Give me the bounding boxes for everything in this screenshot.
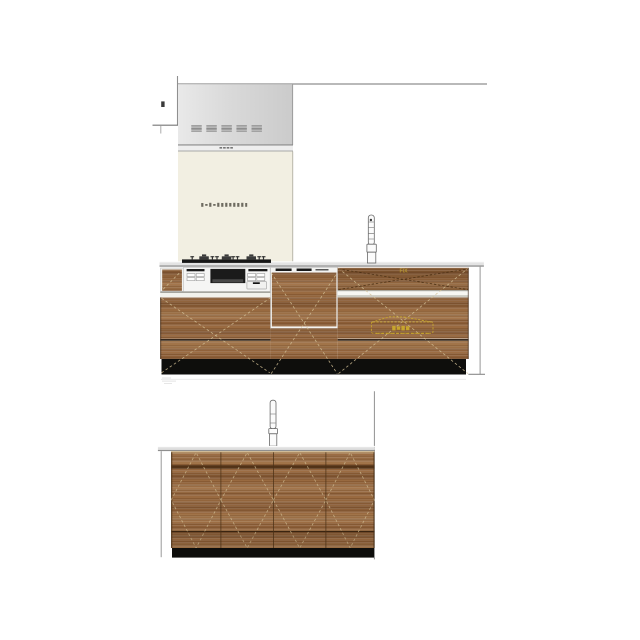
svg-text:FIX: FIX bbox=[399, 269, 408, 275]
